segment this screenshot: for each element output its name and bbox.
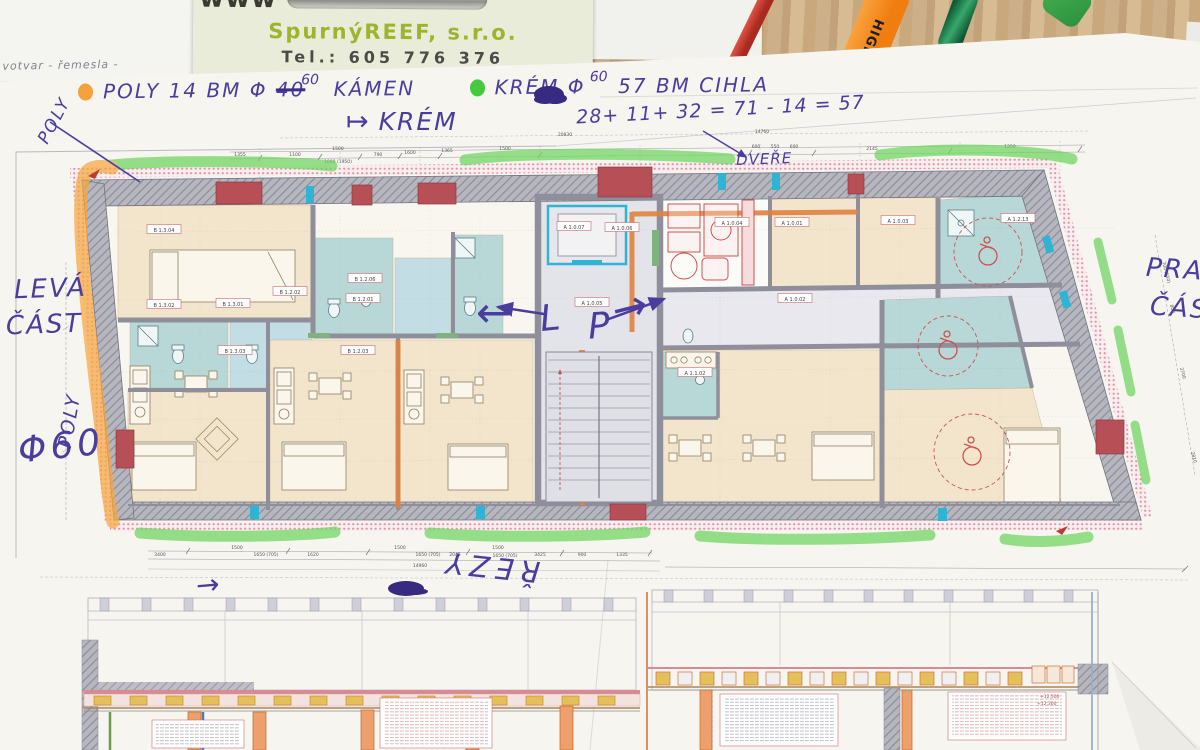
shower: [138, 326, 158, 346]
handwritten-cast-left: ČÁST: [5, 309, 82, 342]
note2-material: 57 BM CIHLA: [618, 72, 769, 98]
staircase: [546, 352, 652, 502]
note1-text: POLY 14 BM Φ: [103, 78, 268, 104]
dim-label: 1500: [332, 146, 344, 152]
dim-label: 600: [752, 144, 761, 150]
note1-corrected-value: 60: [301, 72, 319, 88]
dim-label: 790: [374, 152, 383, 158]
ink-scribble: [534, 86, 564, 103]
dim-label: 1500: [231, 545, 243, 551]
dim-label: 3400: [154, 552, 166, 558]
dim-label: 14760: [755, 129, 769, 135]
room-label: B 1.3.03: [225, 349, 246, 355]
handwritten-krem-note: ↦KRÉM: [346, 106, 458, 137]
dim-label: 14960: [413, 563, 427, 569]
room-label: B 1.3.02: [154, 303, 175, 309]
dim-label: 1100: [289, 152, 301, 158]
toilet: [172, 345, 184, 364]
ink-scribble: [388, 581, 424, 596]
dim-label: 2810: [1189, 451, 1198, 464]
kitchen-counter: [666, 352, 716, 368]
dim-label: 1650 (705): [254, 552, 279, 558]
note2-sup-value: 60: [590, 69, 608, 85]
orange-dot-icon: [78, 83, 93, 100]
room-label: B 1.3.01: [223, 302, 244, 308]
handwritten-rezy-arrow: →: [195, 567, 223, 602]
kitchenette: [130, 366, 150, 424]
room-label: A 1.1.02: [685, 371, 706, 377]
elevator: [548, 206, 626, 265]
room-label: A 1.0.02: [785, 297, 806, 303]
toilet: [683, 329, 693, 343]
dim-label: 1650 (705): [416, 552, 441, 558]
room-label: A 1.2.13: [1008, 217, 1029, 223]
toilet: [464, 297, 476, 316]
maps-to-arrow-icon: ↦: [346, 106, 371, 137]
bed: [812, 432, 874, 480]
room-label: A 1.0.01: [782, 221, 803, 227]
handwritten-leva: LEVÁ: [13, 273, 87, 306]
section-drawing-left: [82, 592, 647, 750]
dim-label: 1365: [441, 148, 453, 154]
dim-label: 20830: [558, 132, 572, 138]
kitchenette: [274, 368, 294, 424]
handwritten-left-arrow: ←: [476, 288, 513, 337]
krem-label: KRÉM: [379, 107, 458, 136]
room-label: A 1.0.03: [888, 219, 909, 225]
bed: [448, 444, 508, 490]
room-label: A 1.0.04: [722, 221, 743, 227]
note1-material: KÁMEN: [333, 76, 415, 101]
shower: [455, 238, 475, 258]
bed: [282, 442, 346, 490]
room-label: B 1.2.01: [353, 297, 374, 303]
bed: [132, 442, 196, 490]
bed: [1004, 428, 1060, 502]
dim-label: 900: [578, 552, 587, 558]
toilet: [328, 299, 340, 318]
green-dot-icon: [469, 79, 484, 96]
room-label: B 1.3.04: [154, 228, 175, 234]
handwritten-cast-right: ČÁST: [1149, 291, 1200, 326]
room-label: B 1.2.03: [348, 349, 369, 355]
room-label: B 1.2.02: [280, 290, 301, 296]
level-label: +12,500: [1040, 694, 1060, 700]
level-label: +12,300: [1037, 701, 1057, 707]
dim-label: 2700: [1178, 367, 1187, 380]
handwritten-dvere-label: DVEŘE: [736, 149, 793, 169]
room-label: B 1.2.06: [355, 277, 376, 283]
dim-label: 1620: [307, 552, 319, 558]
handwritten-letter-l: L: [538, 297, 564, 340]
handwritten-letter-p: P: [587, 305, 614, 348]
dim-label: 1500: [394, 545, 406, 551]
dim-label: 1600: [404, 150, 416, 156]
room-label: A 1.0.06: [612, 226, 633, 232]
room-label: A 1.0.07: [564, 225, 585, 231]
kitchenette: [404, 370, 424, 424]
dim-label: 1335: [616, 552, 628, 558]
section-drawing-right: +12,500 +12,300: [648, 590, 1108, 750]
